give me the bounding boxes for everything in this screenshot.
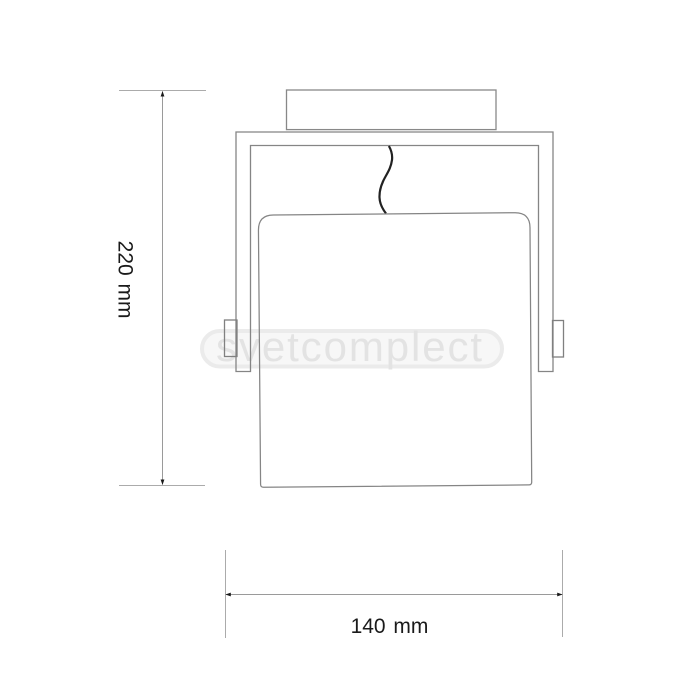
- svg-text:220 mm: 220 mm: [113, 241, 136, 319]
- svg-text:140 mm: 140 mm: [351, 615, 429, 638]
- svg-text:svetcomplect: svetcomplect: [216, 323, 484, 370]
